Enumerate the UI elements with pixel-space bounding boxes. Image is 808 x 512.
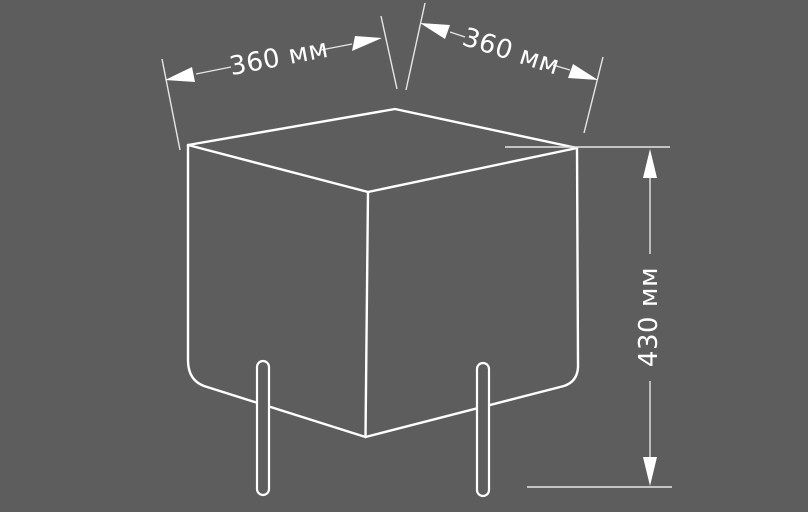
- dimension-diagram: 360 мм 360 мм 430 мм: [0, 0, 808, 512]
- front-right-leg: [477, 363, 489, 496]
- diagram-background: [0, 0, 808, 512]
- height-label: 430 мм: [634, 267, 664, 367]
- front-left-leg: [257, 361, 269, 495]
